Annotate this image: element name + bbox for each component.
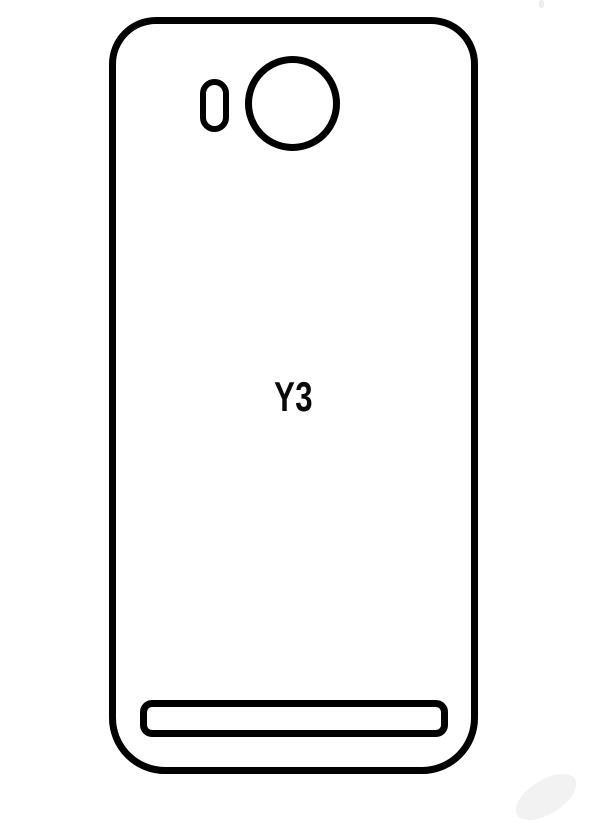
model-label: Y3: [157, 376, 430, 418]
scan-speck-artifact: [539, 0, 544, 8]
camera-cutout: [245, 56, 340, 151]
flash-cutout: [200, 79, 229, 132]
bottom-port-cutout: [140, 700, 448, 737]
template-diagram: Y3: [0, 0, 600, 800]
scan-smudge-artifact: [508, 765, 584, 829]
